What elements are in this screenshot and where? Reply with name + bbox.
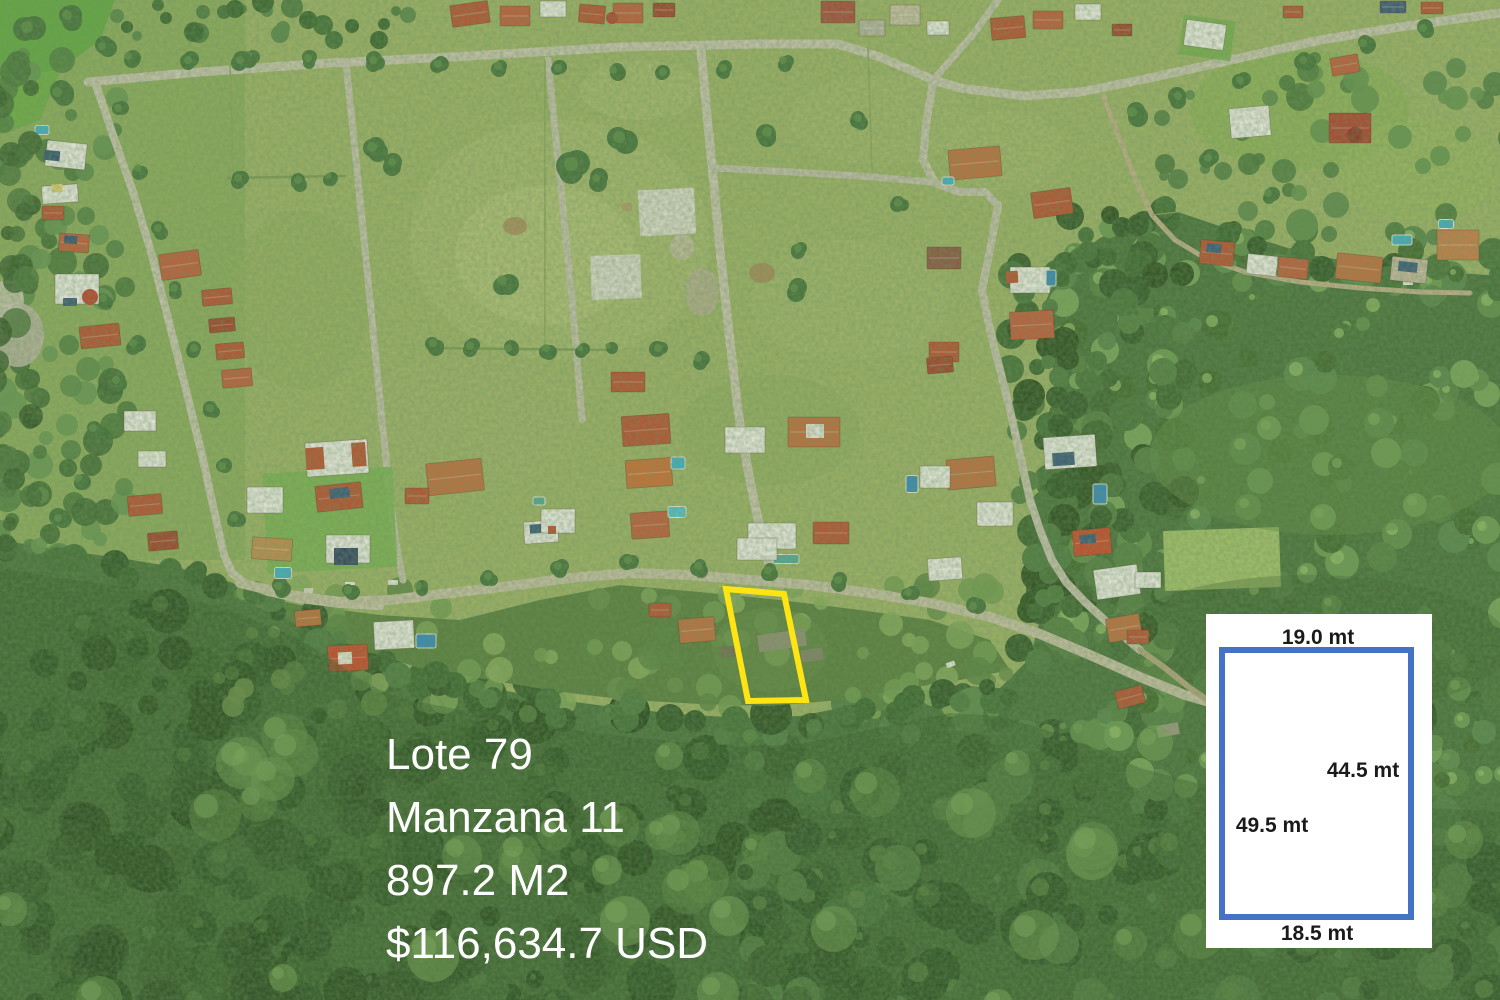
svg-text:19.0 mt: 19.0 mt [1282, 626, 1354, 649]
svg-text:Lote 79: Lote 79 [386, 730, 533, 779]
svg-text:Manzana 11: Manzana 11 [386, 793, 625, 842]
svg-text:897.2 M2: 897.2 M2 [386, 856, 569, 905]
svg-text:44.5 mt: 44.5 mt [1327, 759, 1399, 782]
svg-text:49.5 mt: 49.5 mt [1236, 814, 1308, 837]
svg-text:$116,634.7 USD: $116,634.7 USD [386, 919, 708, 968]
svg-text:18.5 mt: 18.5 mt [1281, 922, 1353, 945]
